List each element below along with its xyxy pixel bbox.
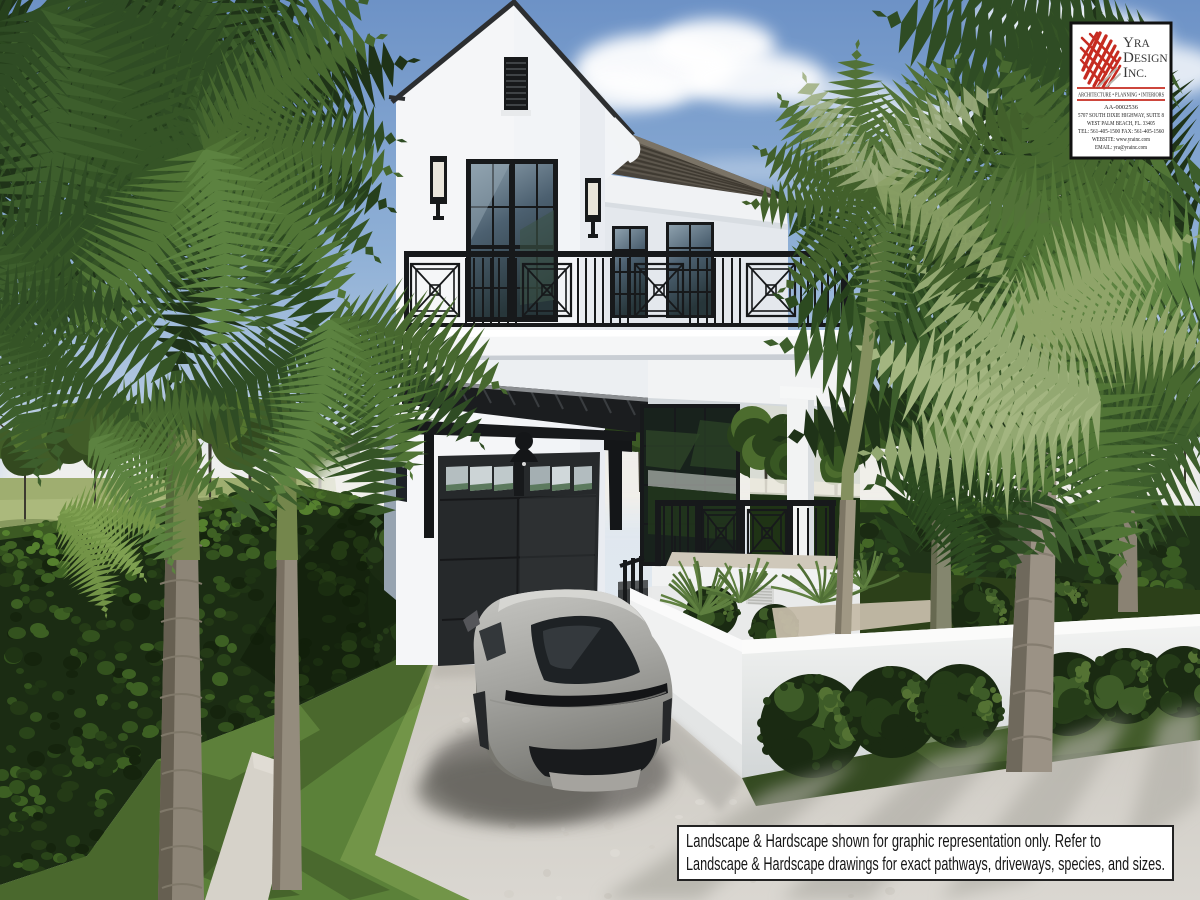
svg-text:INC.: INC. [1123, 65, 1147, 81]
svg-text:5707 SOUTH DIXIE HIGHWAY, SUIT: 5707 SOUTH DIXIE HIGHWAY, SUITE 8 [1078, 112, 1164, 119]
svg-text:ARCHITECTURE • PLANNING • INTE: ARCHITECTURE • PLANNING • INTERIORS [1078, 92, 1164, 99]
svg-text:WEST PALM BEACH, FL. 33405: WEST PALM BEACH, FL. 33405 [1087, 120, 1155, 127]
svg-text:TEL: 561-405-1500 FAX: 561-40: TEL: 561-405-1500 FAX: 561-405-1560 [1078, 128, 1164, 135]
svg-text:DESIGN: DESIGN [1123, 50, 1168, 66]
svg-text:YRA: YRA [1123, 35, 1151, 51]
svg-text:Landscape & Hardscape drawings: Landscape & Hardscape drawings for exact… [686, 853, 1165, 874]
svg-text:WEBSITE: www.yrainc.com: WEBSITE: www.yrainc.com [1092, 136, 1150, 143]
svg-text:EMAIL: yra@yrainc.com: EMAIL: yra@yrainc.com [1095, 144, 1147, 151]
svg-text:Landscape & Hardscape shown fo: Landscape & Hardscape shown for graphic … [686, 830, 1101, 851]
svg-text:AA-0002536: AA-0002536 [1104, 104, 1138, 111]
